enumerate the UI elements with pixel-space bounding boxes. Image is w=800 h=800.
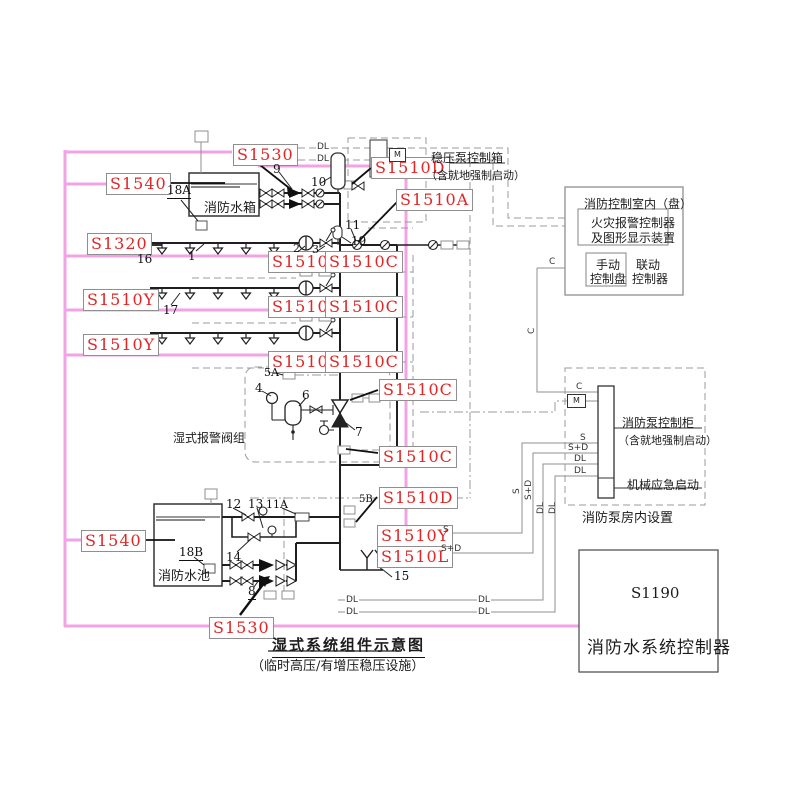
- tag-s1510c-floor1: S1510C: [325, 251, 403, 273]
- tag-s1510c-floor2: S1510C: [325, 296, 403, 318]
- tag-s1510y-floor2: S1510Y: [83, 289, 159, 311]
- diagram-subtitle: （临时高压/有增压稳压设施）: [251, 655, 424, 674]
- wire-c-cabinet: C: [576, 383, 582, 392]
- fire-alarm-controller-line2: 及图形显示装置: [591, 229, 675, 246]
- pump-room-caption: 消防泵房内设置: [582, 507, 673, 526]
- wire-dl-vertical1: DL: [537, 502, 546, 514]
- part-14: 14: [226, 551, 241, 564]
- part-8: 8: [248, 585, 256, 600]
- tag-s1540-top: S1540: [106, 173, 171, 195]
- wire-dl-bottom2: DL: [345, 608, 359, 617]
- control-room-title: 消防控制室内（盘）: [584, 195, 692, 212]
- part-1: 1: [188, 250, 196, 263]
- wire-dl-cabinet2: DL: [574, 467, 586, 476]
- part-18a: 18A: [167, 184, 191, 199]
- wire-dl-bottom4: DL: [477, 608, 491, 617]
- wire-dl-top1: DL: [316, 143, 330, 152]
- lower-pool-label: 消防水池: [158, 565, 210, 584]
- part-9: 9: [273, 163, 281, 176]
- tag-s1510c-alarm-bottom: S1510C: [379, 446, 457, 468]
- part-5a: 5A: [264, 366, 279, 379]
- part-10: 10: [311, 176, 326, 189]
- motor-box-top: M: [389, 148, 406, 162]
- motor-box-cabinet: M: [567, 394, 586, 408]
- wire-dl-vertical2: DL: [549, 502, 558, 514]
- wire-c-manual: C: [549, 258, 555, 267]
- stab-pump-box-subtitle: （含就地强制启动）: [426, 167, 525, 183]
- check-cones: [276, 560, 296, 586]
- wire-dl-top2: DL: [316, 155, 330, 164]
- wire-sd-tag: S+D: [441, 545, 461, 554]
- part-18b: 18B: [179, 546, 203, 561]
- tag-s1530-bottom: S1530: [209, 617, 274, 639]
- part-3: 3: [312, 243, 319, 256]
- part-5b: 5B: [359, 493, 373, 506]
- manual-panel-line2: 控制盘: [590, 270, 626, 287]
- wire-dl-bottom1: DL: [345, 596, 359, 605]
- part-11a: 11A: [266, 498, 288, 511]
- pump-cabinet-line1: 消防泵控制柜: [622, 414, 694, 431]
- wire-s-cabinet: S: [580, 434, 586, 443]
- wire-sd-cabinet: S+D: [568, 444, 588, 453]
- stab-pump-box-title: 稳压泵控制箱: [431, 149, 503, 166]
- part-4: 4: [255, 382, 263, 395]
- alarm-valve-group-label: 湿式报警阀组: [173, 429, 245, 446]
- part-13: 13: [248, 498, 263, 511]
- pink-bus-lines: [64, 150, 579, 627]
- part-17: 17: [163, 304, 178, 317]
- tag-s1510c-alarm-top: S1510C: [379, 379, 457, 401]
- tag-s1510c-floor3: S1510C: [325, 351, 403, 373]
- part-12: 12: [226, 498, 241, 511]
- controller-id: S1190: [631, 584, 679, 602]
- controller-name: 消防水系统控制器: [587, 633, 731, 658]
- wire-s-tag: S: [443, 526, 449, 535]
- part-19: 19: [351, 235, 366, 248]
- tag-s1510y-floor3: S1510Y: [83, 334, 159, 356]
- upper-tank-label: 消防水箱: [204, 197, 256, 216]
- wire-sd-vertical: S+D: [525, 480, 534, 500]
- wire-s-vertical: S: [513, 488, 522, 494]
- part-6: 6: [302, 389, 310, 402]
- tag-s1510d-mid: S1510D: [379, 487, 458, 509]
- part-11: 11: [345, 219, 360, 232]
- part-15: 15: [394, 570, 409, 583]
- tag-s1540-bottom: S1540: [81, 530, 146, 552]
- tag-s1530-top: S1530: [233, 144, 298, 166]
- wire-c-vertical: C: [528, 328, 537, 334]
- part-7: 7: [355, 426, 363, 439]
- pump-cabinet-line2: （含就地强制启动）: [618, 432, 717, 448]
- part-16: 16: [137, 253, 152, 266]
- linkage-controller-line2: 控制器: [632, 270, 668, 287]
- tag-s1510a: S1510A: [396, 189, 473, 211]
- wire-dl-bottom3: DL: [477, 596, 491, 605]
- mechanical-emergency-label: 机械应急启动: [627, 476, 699, 493]
- wet-sprinkler-system-schematic: S1530 S1540 S1510D S1510A S1320 S1510B S…: [0, 0, 800, 800]
- wire-dl-cabinet1: DL: [574, 455, 586, 464]
- floor-branches: [158, 228, 336, 344]
- alarm-valve-group-box: [245, 367, 390, 462]
- part-2: 2: [293, 242, 300, 255]
